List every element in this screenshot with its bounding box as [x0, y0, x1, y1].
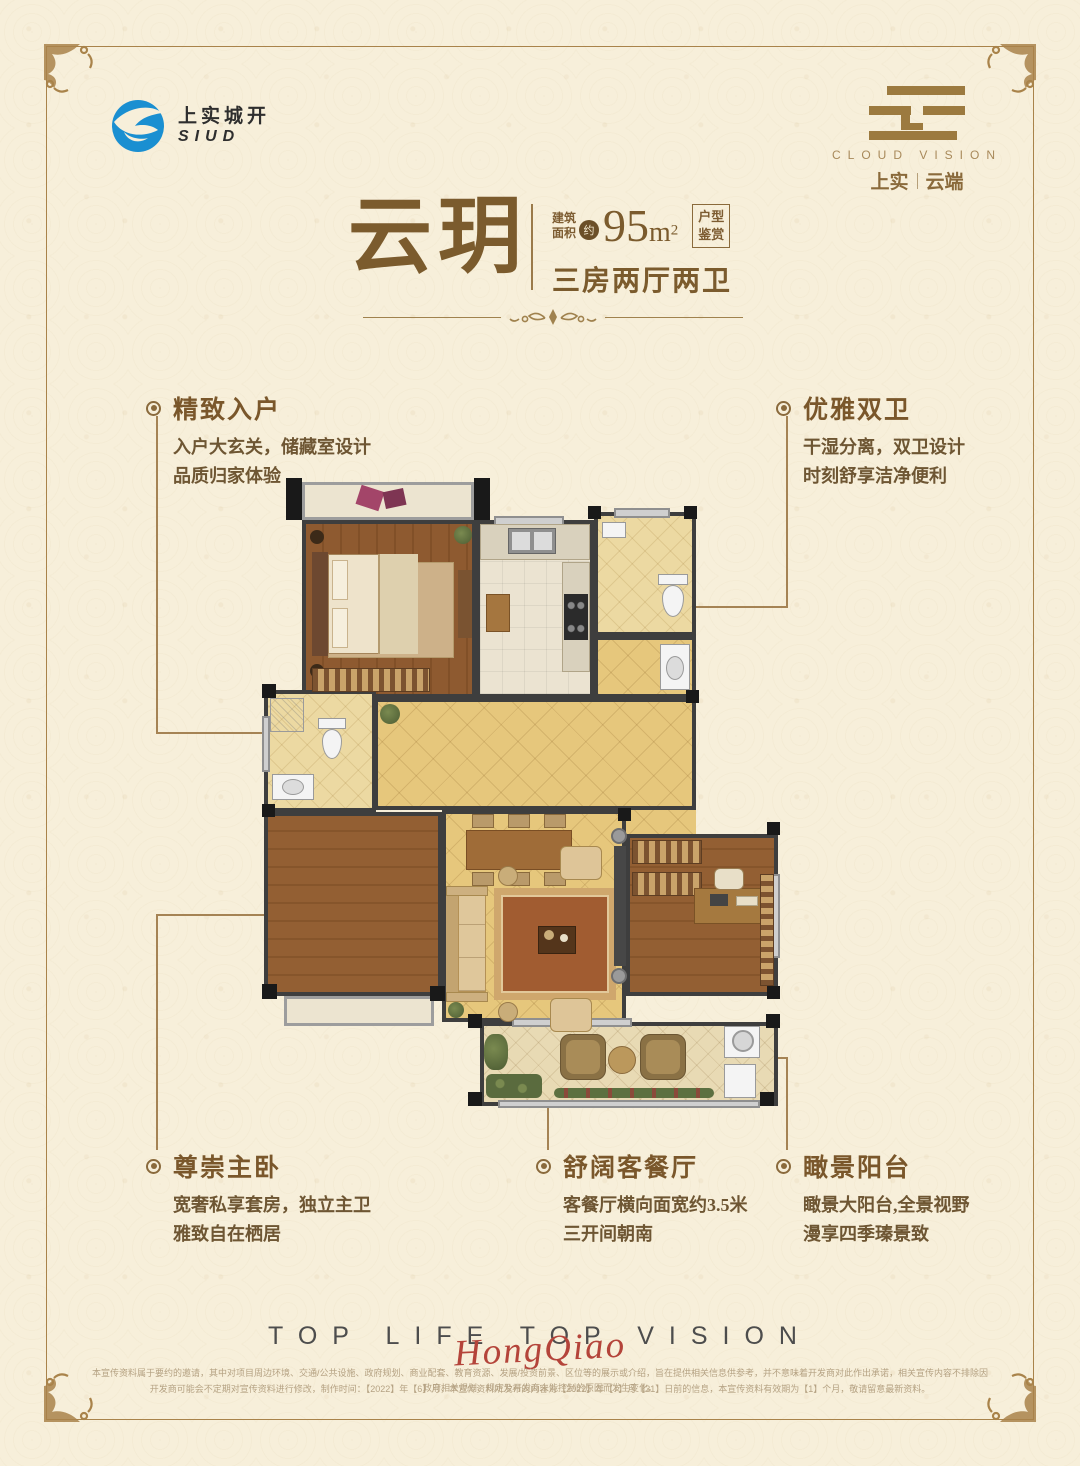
tv-wall	[614, 846, 626, 966]
sink-basin	[512, 532, 530, 550]
balcony-table	[608, 1046, 636, 1074]
sink-basin	[534, 532, 552, 550]
dining-chair	[472, 872, 494, 886]
bullet-icon	[146, 401, 161, 416]
dining-chair	[544, 814, 566, 828]
wardrobe	[312, 668, 430, 692]
huxing-badge: 户型 鉴赏	[692, 204, 730, 247]
bed-headboard	[312, 552, 328, 656]
speaker	[611, 828, 627, 844]
window	[614, 508, 670, 518]
leader-line	[786, 1057, 788, 1150]
callout-title: 精致入户	[173, 390, 281, 426]
room-master-bedroom	[264, 812, 442, 996]
chair-cushion	[566, 1040, 600, 1074]
siud-logo-en: SIUD	[178, 128, 270, 146]
closet	[632, 840, 702, 864]
callout-bathrooms: 优雅双卫 干湿分离，双卫设计时刻舒享洁净便利	[776, 390, 1076, 491]
unit-name: 云玥	[348, 196, 528, 280]
leader-line	[786, 416, 788, 608]
tray	[544, 930, 554, 940]
callout-text: 宽奢私享套房，独立主卫雅致自在栖居	[173, 1191, 446, 1249]
closet	[632, 872, 702, 896]
side-table	[498, 1002, 518, 1022]
callout-master-bedroom: 尊崇主卧 宽奢私享套房，独立主卫雅致自在栖居	[146, 1148, 446, 1249]
stove	[564, 594, 588, 640]
wall-pier	[286, 478, 302, 520]
laptop	[710, 894, 728, 906]
bookshelf	[760, 874, 774, 986]
tray	[560, 934, 568, 942]
bedside-lamp	[310, 530, 324, 544]
plant	[484, 1034, 508, 1070]
sofa	[458, 892, 486, 992]
coffee-table	[538, 926, 576, 954]
cloud-bars-mark-icon	[869, 86, 965, 140]
callout-title: 瞰景阳台	[803, 1148, 911, 1184]
toilet-tank	[658, 574, 688, 585]
bathroom-sink	[602, 522, 626, 538]
dining-chair	[508, 814, 530, 828]
area-label: 建筑 面积	[552, 211, 576, 241]
leader-line	[156, 416, 158, 733]
cloud-vision-cn-right: 云端	[926, 167, 964, 194]
armchair	[560, 846, 602, 880]
dining-table	[466, 830, 572, 870]
siud-swoosh-icon	[110, 98, 166, 154]
dining-chair	[472, 814, 494, 828]
armchair	[550, 998, 592, 1032]
vanity-basin	[666, 656, 684, 680]
wall-pier	[468, 1092, 482, 1106]
balcony-railing	[498, 1100, 760, 1108]
cloud-vision-en: CLOUD VISION	[822, 148, 1012, 162]
papers	[736, 896, 758, 906]
bullet-icon	[536, 1159, 551, 1174]
flourish-icon	[505, 306, 601, 330]
corner-ornament-icon	[40, 40, 106, 106]
wall-pier	[474, 478, 490, 520]
window	[262, 716, 270, 772]
cloud-vision-logo: CLOUD VISION 上实 云端	[822, 86, 1012, 194]
wall-pier	[262, 684, 276, 698]
cloud-vision-cn-left: 上实	[870, 167, 908, 194]
fine-print-line2: 开发商可能会不定期对宣传资料进行修改，制作时间：【2022】年【6】月，本宣传资…	[90, 1382, 990, 1397]
wall-pier	[684, 506, 697, 519]
floor-plan	[262, 478, 782, 1126]
bullet-icon	[776, 1159, 791, 1174]
ornament-divider	[363, 306, 743, 330]
wall-pier	[588, 506, 601, 519]
siud-logo-cn: 上实城开	[178, 106, 270, 128]
callout-title: 优雅双卫	[803, 390, 911, 426]
callout-entry: 精致入户 入户大玄关，储藏室设计品质归家体验	[146, 390, 446, 491]
shower	[270, 698, 304, 732]
callout-text: 干湿分离，双卫设计时刻舒享洁净便利	[803, 433, 1076, 491]
title-divider	[531, 204, 533, 290]
wall-pier	[430, 986, 445, 1001]
callout-title: 舒阔客餐厅	[563, 1148, 698, 1184]
side-table	[498, 866, 518, 886]
blanket	[378, 554, 418, 654]
wall-pier	[767, 822, 780, 835]
wall-pier	[262, 984, 277, 999]
plant	[380, 704, 400, 724]
dresser	[458, 570, 472, 638]
speaker	[611, 968, 627, 984]
bay-window	[284, 996, 434, 1026]
pillow	[332, 608, 348, 648]
callout-title: 尊崇主卧	[173, 1148, 281, 1184]
vanity-basin	[282, 779, 304, 795]
unit-spec: 建筑 面积 约 95m2 户型 鉴赏 三房两厅两卫	[552, 203, 762, 299]
wall-pier	[760, 1092, 774, 1106]
toilet-tank	[318, 718, 346, 729]
washer-drum	[732, 1030, 754, 1052]
planter	[486, 1074, 542, 1098]
plant	[448, 1002, 464, 1018]
approx-badge: 约	[579, 220, 599, 240]
leader-line	[156, 914, 158, 1150]
callout-text: 瞰景大阳台,全景视野漫享四季瑧景致	[803, 1191, 1076, 1249]
desk	[694, 888, 770, 924]
pillow	[332, 560, 348, 600]
desk-chair	[714, 868, 744, 890]
chair-cushion	[646, 1040, 680, 1074]
cloud-vision-cn: 上实 云端	[822, 167, 1012, 194]
wall-pier	[766, 1014, 780, 1028]
room-corridor	[626, 810, 696, 836]
callout-balcony: 瞰景阳台 瞰景大阳台,全景视野漫享四季瑧景致	[776, 1148, 1076, 1249]
wall-pier	[262, 804, 275, 817]
wall-pier	[767, 986, 780, 999]
siud-logo: 上实城开 SIUD	[110, 98, 270, 154]
sofa-back	[446, 892, 458, 992]
floorplan-poster: 上实城开 SIUD CLOUD VISION 上实 云端 云玥 建筑 面积	[0, 0, 1080, 1466]
unit-layout: 三房两厅两卫	[552, 259, 762, 299]
laundry-sink	[724, 1064, 756, 1098]
wall-pier	[686, 690, 699, 703]
bullet-icon	[146, 1159, 161, 1174]
wall-pier	[618, 808, 631, 821]
bullet-icon	[776, 401, 791, 416]
divider-bar	[917, 173, 918, 189]
room-hallway	[374, 698, 696, 810]
plant	[454, 526, 472, 544]
sofa-arm	[446, 992, 488, 1002]
area-value: 95m2	[603, 203, 678, 249]
wall-pier	[468, 1014, 482, 1028]
kitchen-cart	[486, 594, 510, 632]
flower-bed	[554, 1088, 714, 1098]
sofa-arm	[446, 886, 488, 896]
